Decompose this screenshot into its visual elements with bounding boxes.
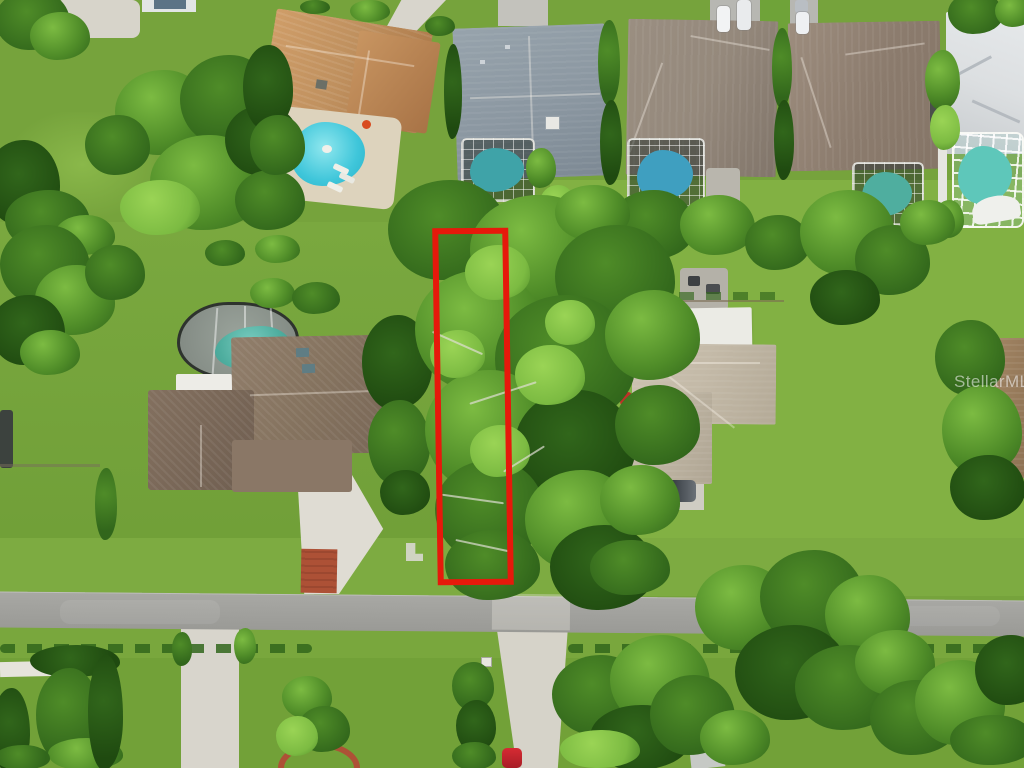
- tree-canopy: [605, 290, 700, 380]
- hedge: [444, 44, 462, 139]
- shrub: [292, 282, 340, 314]
- palm: [930, 105, 960, 150]
- van-white: [737, 0, 751, 30]
- palm: [276, 716, 318, 756]
- tree-canopy: [810, 270, 880, 325]
- neighbor-pool-sliver: [154, 0, 186, 9]
- shrub: [234, 628, 256, 664]
- shrub: [255, 235, 300, 263]
- tree-canopy: [20, 330, 80, 375]
- shrub: [300, 0, 330, 14]
- lot-boundary-overlay: [432, 228, 514, 586]
- road-worn-patch: [60, 600, 220, 624]
- tree-canopy: [615, 385, 700, 465]
- red-car: [502, 748, 522, 768]
- house-roof-brown: [232, 440, 352, 492]
- hedge: [774, 100, 794, 180]
- brick-apron: [301, 549, 338, 594]
- roof-vent: [505, 45, 510, 49]
- hedge: [452, 742, 496, 768]
- shrub: [172, 632, 192, 666]
- umbrella: [362, 120, 371, 129]
- tree-canopy: [600, 465, 680, 535]
- tree-canopy: [250, 115, 305, 175]
- shrub: [526, 148, 556, 188]
- tree-canopy: [515, 345, 585, 405]
- shrub: [250, 278, 295, 308]
- tree-canopy: [0, 745, 50, 768]
- roof-ridge: [200, 425, 202, 487]
- skylight: [296, 348, 309, 357]
- shrub: [350, 0, 390, 22]
- patio-table: [322, 145, 332, 153]
- chimney: [545, 116, 560, 130]
- tree-canopy: [560, 730, 640, 768]
- roof-vent: [480, 60, 485, 64]
- tree-canopy: [30, 12, 90, 60]
- tree-canopy: [950, 455, 1024, 520]
- hedge: [772, 28, 792, 108]
- hedge: [95, 468, 117, 540]
- aerial-photo: StellarMLS: [0, 0, 1024, 768]
- driveway: [498, 0, 548, 26]
- car-white: [796, 12, 809, 34]
- tree-canopy: [950, 715, 1024, 765]
- car-white: [717, 6, 730, 32]
- hedge: [88, 655, 123, 768]
- skylight: [315, 79, 327, 90]
- fence-line: [0, 464, 100, 467]
- hedge: [600, 100, 622, 185]
- shrub: [425, 16, 455, 36]
- trailer: [0, 410, 13, 468]
- palm: [925, 50, 960, 110]
- tree-canopy: [380, 470, 430, 515]
- tree-canopy: [700, 710, 770, 765]
- tree-canopy: [120, 180, 200, 235]
- hedge: [598, 20, 620, 105]
- mls-watermark: StellarMLS: [954, 372, 1024, 392]
- tree-canopy: [900, 200, 955, 245]
- tree-canopy: [680, 195, 755, 255]
- tree-canopy: [590, 540, 670, 595]
- shrub: [205, 240, 245, 266]
- tree-canopy: [85, 245, 145, 300]
- tree-canopy: [85, 115, 150, 175]
- tree-canopy: [235, 170, 305, 230]
- lattice-porch: [852, 136, 924, 162]
- road-worn-patch: [492, 594, 570, 631]
- equipment: [688, 276, 700, 286]
- tree-canopy: [545, 300, 595, 345]
- skylight: [302, 364, 315, 373]
